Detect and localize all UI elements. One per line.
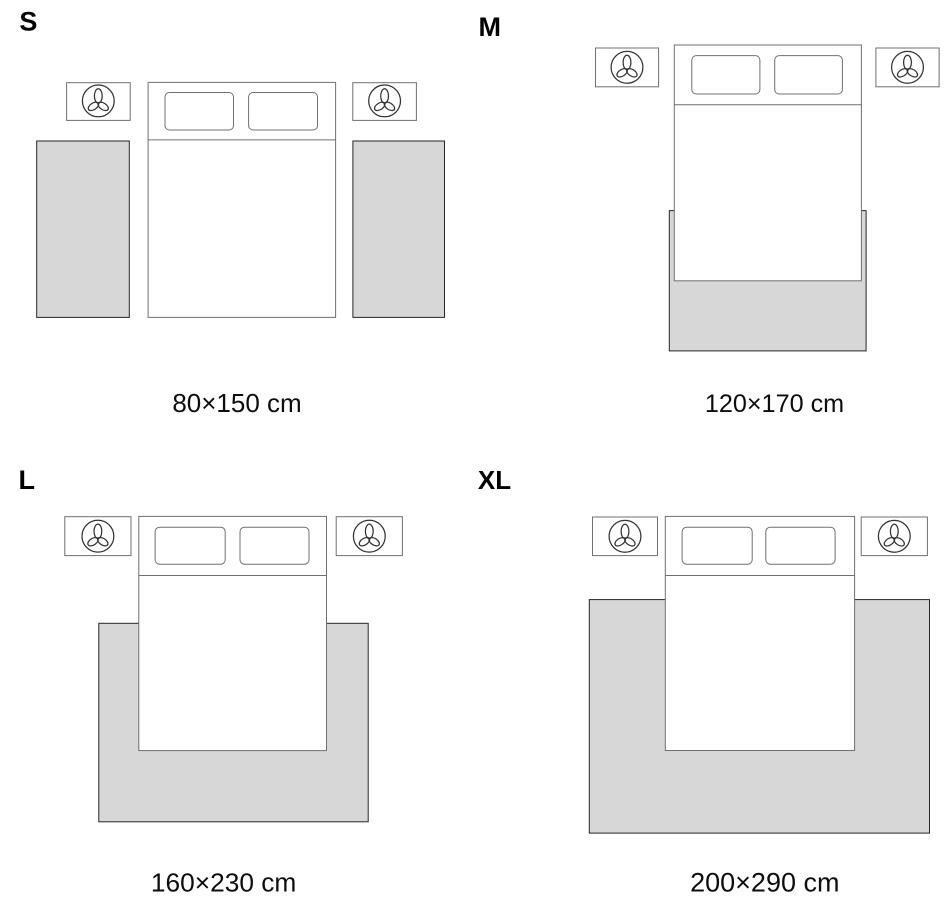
svg-text:XL: XL: [478, 465, 511, 495]
svg-text:L: L: [19, 465, 36, 495]
svg-text:S: S: [19, 6, 37, 36]
svg-text:200×290 cm: 200×290 cm: [690, 868, 839, 898]
svg-text:160×230 cm: 160×230 cm: [151, 867, 296, 897]
svg-text:120×170 cm: 120×170 cm: [705, 390, 844, 418]
svg-text:80×150 cm: 80×150 cm: [172, 388, 301, 418]
svg-text:M: M: [479, 12, 502, 42]
